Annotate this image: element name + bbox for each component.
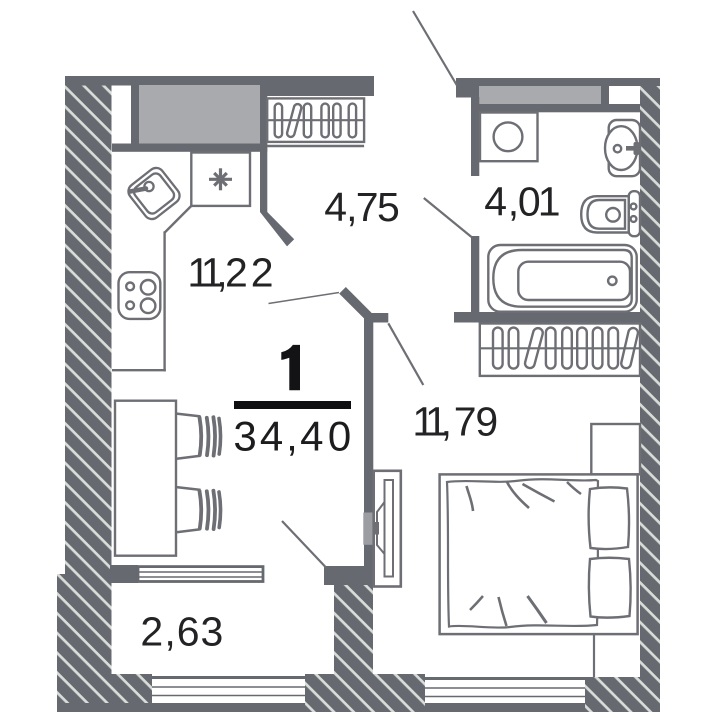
svg-text:2: 2 [251,249,274,295]
svg-text:3: 3 [233,413,256,460]
svg-text:4: 4 [300,413,323,460]
svg-text:6: 6 [177,608,200,654]
svg-text:3: 3 [200,608,223,654]
svg-text:4: 4 [260,413,283,460]
svg-text:5: 5 [377,184,400,230]
svg-text:9: 9 [475,398,498,444]
svg-text:0: 0 [328,413,351,460]
svg-text:1: 1 [538,179,561,225]
svg-text:7: 7 [454,398,477,444]
svg-text:4: 4 [484,179,507,225]
svg-text:,: , [441,398,452,444]
svg-text:2: 2 [225,249,248,295]
svg-text:,: , [286,413,298,460]
svg-text:4: 4 [324,184,347,230]
svg-text:7: 7 [356,184,379,230]
svg-text:,: , [164,608,175,654]
svg-text:2: 2 [140,608,163,654]
